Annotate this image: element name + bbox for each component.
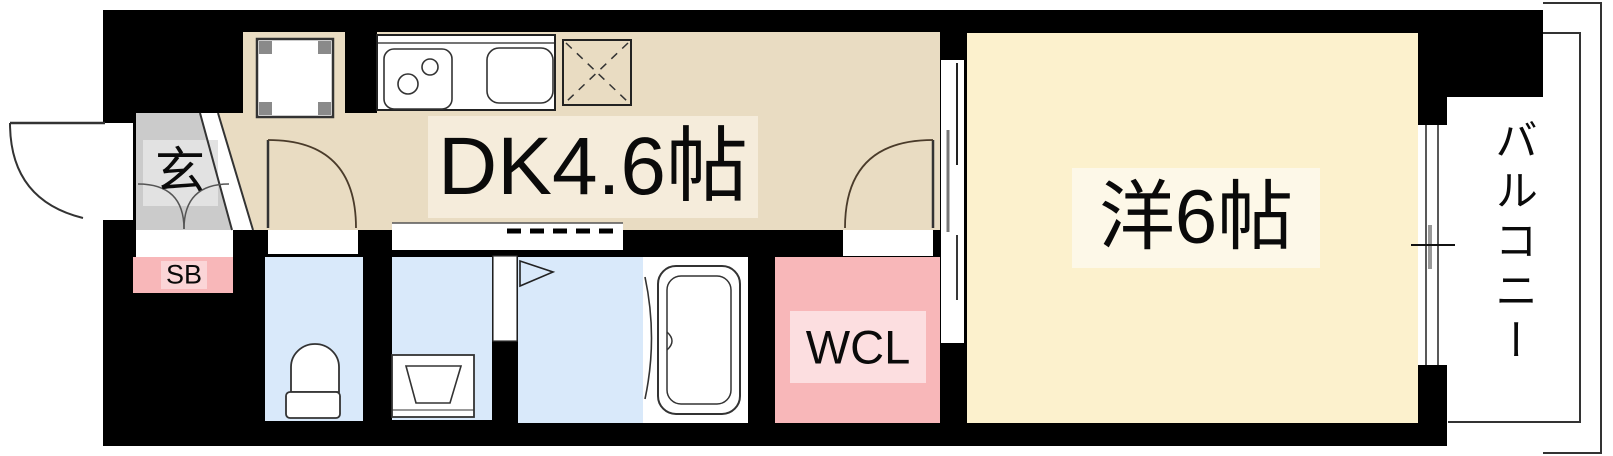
washer-corner-bl [259,102,272,115]
room-label-dk: DK4.6帖 [438,126,748,208]
washer-corner-tr [318,41,331,54]
room-bath-floor [518,257,643,423]
entrance-door-swing [10,123,83,218]
hallway-opening [392,223,623,250]
window-lock-bar [1428,225,1432,269]
room-label-balcony: バルコニー [1491,118,1534,368]
genkan-lower-opening [136,230,233,257]
bath-door-panel [493,256,517,341]
washer-corner-tl [259,41,272,54]
room-label-western: 洋6帖 [1099,180,1293,256]
floor-plan: 玄 SB DK4.6帖 WCL 洋6帖 バルコニー [0,0,1613,456]
room-label-genkan: 玄 [155,146,205,196]
room-label-wcl: WCL [806,324,910,371]
entrance-opening [103,123,133,220]
toilet-bowl [291,344,339,392]
bathtub-outer [658,266,740,414]
kitchen-sink [487,48,553,103]
washbasin-cabinet [392,355,474,417]
toilet-door-opening [268,230,358,254]
sliding-door-pocket [941,60,964,343]
wcl-door-opening [843,230,933,256]
wall-balcony-corner [1418,10,1543,97]
balcony-outer-edge [1543,3,1601,453]
room-label-shoe-box: SB [166,262,202,289]
washer-corner-br [318,102,331,115]
toilet-tank [286,392,340,418]
floor-plan-drawing [0,0,1613,456]
